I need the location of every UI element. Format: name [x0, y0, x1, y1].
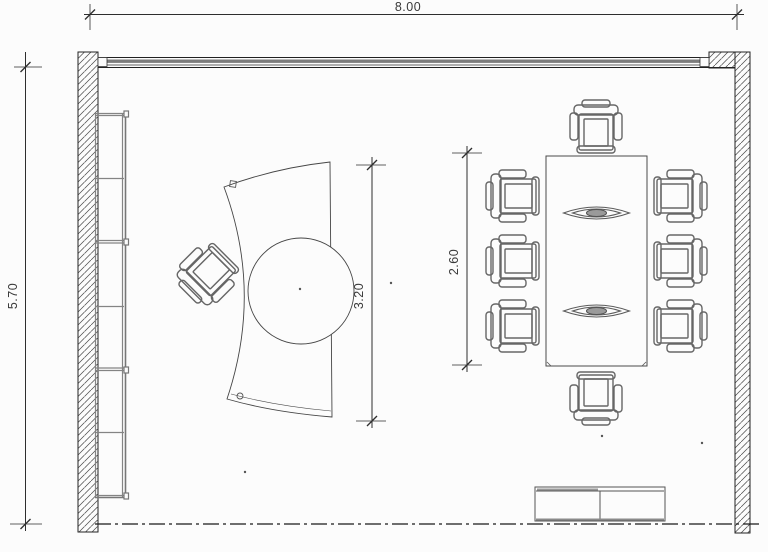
conference-chair-right-2 [654, 235, 707, 287]
window-band [98, 58, 735, 68]
conference-table-top [546, 156, 647, 366]
dimension-height-label: 5.70 [6, 283, 20, 309]
right-wall [735, 52, 750, 533]
dimension-table-span-label: 2.60 [447, 249, 461, 275]
conference-chair-bottom [570, 372, 622, 425]
conference-chair-left-1 [486, 170, 539, 222]
conference-chair-right-3 [654, 300, 707, 352]
window-end-cap-left [98, 58, 107, 67]
top-right-wall-corner [709, 52, 735, 68]
conference-chair-left-3 [486, 300, 539, 352]
dimension-width: 8.00 [84, 0, 744, 30]
sideboard [535, 487, 665, 521]
dimension-height: 5.70 [6, 52, 42, 531]
wall-shelf [95, 111, 129, 499]
dimension-desk-span: 3.20 [352, 157, 386, 428]
desk-swivel-chair [169, 237, 245, 313]
dimension-width-label: 8.00 [395, 0, 421, 14]
desk-round-extension [248, 238, 354, 344]
walls [78, 52, 750, 533]
window-glass-strip [107, 60, 701, 63]
floor-plan-drawing: 8.00 5.70 3.20 2.60 [0, 0, 768, 552]
conference-chair-left-2 [486, 235, 539, 287]
conference-table-group [486, 100, 707, 425]
conference-chair-top [570, 100, 622, 153]
conference-chair-right-1 [654, 170, 707, 222]
floor-plan-sheet: 8.00 5.70 3.20 2.60 [0, 0, 768, 552]
window-end-cap-right [700, 58, 709, 67]
executive-desk [224, 162, 354, 417]
dimension-table-span: 2.60 [447, 146, 482, 372]
